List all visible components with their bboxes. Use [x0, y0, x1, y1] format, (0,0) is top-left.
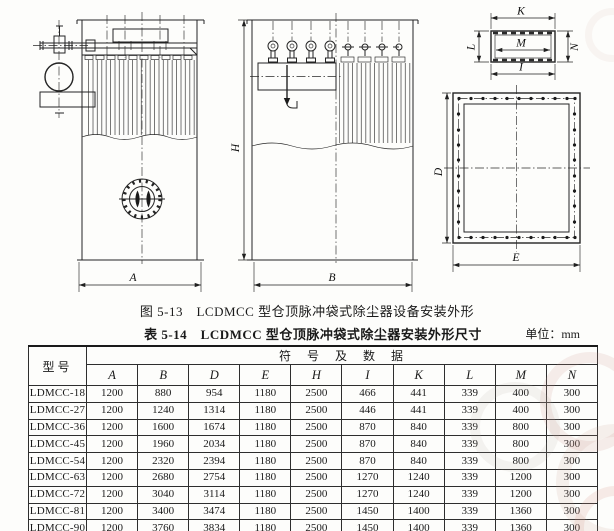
table-body: LDMCC-1812008809541180250046644133940030… — [29, 386, 598, 531]
installation-drawings: A H — [0, 0, 614, 300]
column-header-d: D — [189, 365, 240, 386]
value-cell: 339 — [444, 486, 495, 503]
value-cell: 1180 — [240, 453, 291, 470]
value-cell: 300 — [546, 402, 597, 419]
dim-label-h: H — [230, 143, 242, 153]
value-cell: 1180 — [240, 486, 291, 503]
value-cell: 400 — [495, 386, 546, 403]
table-row: LDMCC-4512001960203411802500870840339800… — [29, 436, 598, 453]
value-cell: 1200 — [87, 402, 138, 419]
unit-label: 单位：mm — [525, 325, 580, 342]
value-cell: 1400 — [393, 520, 444, 531]
value-cell: 2394 — [189, 453, 240, 470]
column-header-k: K — [393, 365, 444, 386]
column-header-l: L — [444, 365, 495, 386]
value-cell: 1270 — [342, 486, 393, 503]
model-cell: LDMCC-36 — [29, 419, 87, 436]
value-cell: 339 — [444, 503, 495, 520]
table-caption: 表 5-14 LCDMCC 型仓顶脉冲袋式除尘器安装外形尺寸 — [28, 324, 598, 343]
value-cell: 1180 — [240, 436, 291, 453]
value-cell: 2754 — [189, 469, 240, 486]
model-cell: LDMCC-45 — [29, 436, 87, 453]
dimension-table: 型号 符 号 及 数 据 A B D E H I K L M N LDMCC-1… — [28, 345, 598, 531]
figure-caption: 图 5-13 LCDMCC 型仓顶脉冲袋式除尘器设备安装外形 — [0, 301, 614, 320]
value-cell: 800 — [495, 436, 546, 453]
value-cell: 300 — [546, 486, 597, 503]
table-row: LDMCC-5412002320239411802500870840339800… — [29, 453, 598, 470]
value-cell: 400 — [495, 402, 546, 419]
value-cell: 2500 — [291, 453, 342, 470]
dim-label-d: D — [433, 167, 445, 177]
value-cell: 1450 — [342, 503, 393, 520]
group-header-row: 型号 符 号 及 数 据 — [29, 346, 598, 365]
model-cell: LDMCC-81 — [29, 503, 87, 520]
value-cell: 1240 — [393, 486, 444, 503]
column-header-e: E — [240, 365, 291, 386]
table-row: LDMCC-8112003400347411802500145014003391… — [29, 503, 598, 520]
dim-label-b: B — [328, 272, 335, 284]
value-cell: 2500 — [291, 386, 342, 403]
value-cell: 1200 — [87, 419, 138, 436]
value-cell: 2500 — [291, 469, 342, 486]
value-cell: 870 — [342, 436, 393, 453]
model-cell: LDMCC-90 — [29, 520, 87, 531]
value-cell: 1240 — [393, 469, 444, 486]
value-cell: 339 — [444, 419, 495, 436]
value-cell: 1200 — [87, 453, 138, 470]
value-cell: 1200 — [87, 386, 138, 403]
value-cell: 1400 — [393, 503, 444, 520]
value-cell: 1180 — [240, 520, 291, 531]
value-cell: 1240 — [138, 402, 189, 419]
value-cell: 3474 — [189, 503, 240, 520]
column-header-n: N — [546, 365, 597, 386]
model-cell: LDMCC-63 — [29, 469, 87, 486]
value-cell: 300 — [546, 503, 597, 520]
table-row: LDMCC-7212003040311411802500127012403391… — [29, 486, 598, 503]
value-cell: 1450 — [342, 520, 393, 531]
value-cell: 3760 — [138, 520, 189, 531]
value-cell: 1180 — [240, 386, 291, 403]
symbols-group-header: 符 号 及 数 据 — [87, 346, 598, 365]
value-cell: 300 — [546, 520, 597, 531]
value-cell: 1200 — [495, 486, 546, 503]
value-cell: 1674 — [189, 419, 240, 436]
table-row: LDMCC-6312002680275411802500127012403391… — [29, 469, 598, 486]
value-cell: 2500 — [291, 520, 342, 531]
dim-label-k: K — [516, 6, 526, 18]
value-cell: 1200 — [87, 469, 138, 486]
value-cell: 1314 — [189, 402, 240, 419]
value-cell: 2320 — [138, 453, 189, 470]
value-cell: 1360 — [495, 503, 546, 520]
column-header-a: A — [87, 365, 138, 386]
value-cell: 1600 — [138, 419, 189, 436]
symbol-header-row: A B D E H I K L M N — [29, 365, 598, 386]
table-row: LDMCC-3612001600167411802500870840339800… — [29, 419, 598, 436]
value-cell: 1270 — [342, 469, 393, 486]
value-cell: 300 — [546, 469, 597, 486]
value-cell: 339 — [444, 520, 495, 531]
table-caption-row: 表 5-14 LCDMCC 型仓顶脉冲袋式除尘器安装外形尺寸 单位：mm — [28, 324, 598, 343]
model-cell: LDMCC-18 — [29, 386, 87, 403]
value-cell: 1200 — [87, 503, 138, 520]
value-cell: 2500 — [291, 402, 342, 419]
value-cell: 300 — [546, 453, 597, 470]
value-cell: 880 — [138, 386, 189, 403]
value-cell: 3834 — [189, 520, 240, 531]
model-cell: LDMCC-72 — [29, 486, 87, 503]
value-cell: 2500 — [291, 503, 342, 520]
value-cell: 339 — [444, 402, 495, 419]
value-cell: 339 — [444, 386, 495, 403]
value-cell: 840 — [393, 453, 444, 470]
value-cell: 2500 — [291, 436, 342, 453]
value-cell: 1180 — [240, 469, 291, 486]
table-row: LDMCC-1812008809541180250046644133940030… — [29, 386, 598, 403]
side-view-drawing: H — [230, 13, 418, 292]
value-cell: 870 — [342, 419, 393, 436]
value-cell: 3400 — [138, 503, 189, 520]
dim-label-i: I — [518, 62, 524, 74]
value-cell: 870 — [342, 453, 393, 470]
value-cell: 840 — [393, 436, 444, 453]
value-cell: 800 — [495, 453, 546, 470]
document-page: A H — [0, 0, 614, 531]
value-cell: 339 — [444, 436, 495, 453]
table-row: LDMCC-9012003760383411802500145014003391… — [29, 520, 598, 531]
value-cell: 1200 — [87, 486, 138, 503]
value-cell: 954 — [189, 386, 240, 403]
column-header-m: M — [495, 365, 546, 386]
flange-top-view-drawing: D E — [433, 85, 590, 272]
value-cell: 2500 — [291, 419, 342, 436]
value-cell: 2500 — [291, 486, 342, 503]
value-cell: 466 — [342, 386, 393, 403]
value-cell: 2034 — [189, 436, 240, 453]
value-cell: 1200 — [87, 520, 138, 531]
value-cell: 2680 — [138, 469, 189, 486]
model-column-header: 型号 — [29, 346, 87, 386]
value-cell: 300 — [546, 386, 597, 403]
table-row: LDMCC-2712001240131411802500446441339400… — [29, 402, 598, 419]
value-cell: 800 — [495, 419, 546, 436]
model-cell: LDMCC-27 — [29, 402, 87, 419]
value-cell: 446 — [342, 402, 393, 419]
column-header-i: I — [342, 365, 393, 386]
value-cell: 3114 — [189, 486, 240, 503]
value-cell: 1200 — [495, 469, 546, 486]
column-header-h: H — [291, 365, 342, 386]
dim-label-m: M — [515, 38, 527, 50]
front-view-drawing: A — [33, 12, 204, 292]
value-cell: 840 — [393, 419, 444, 436]
dim-label-l: L — [466, 44, 478, 51]
value-cell: 441 — [393, 402, 444, 419]
dim-label-a: A — [128, 272, 137, 284]
outlet-flange-drawing: K M L N I — [466, 6, 582, 81]
value-cell: 1180 — [240, 503, 291, 520]
dim-label-n: N — [569, 42, 581, 52]
dim-label-e: E — [511, 252, 519, 264]
value-cell: 339 — [444, 469, 495, 486]
value-cell: 3040 — [138, 486, 189, 503]
column-header-b: B — [138, 365, 189, 386]
value-cell: 1180 — [240, 402, 291, 419]
value-cell: 300 — [546, 436, 597, 453]
value-cell: 1180 — [240, 419, 291, 436]
value-cell: 441 — [393, 386, 444, 403]
value-cell: 1360 — [495, 520, 546, 531]
value-cell: 300 — [546, 419, 597, 436]
value-cell: 1960 — [138, 436, 189, 453]
value-cell: 1200 — [87, 436, 138, 453]
model-cell: LDMCC-54 — [29, 453, 87, 470]
value-cell: 339 — [444, 453, 495, 470]
